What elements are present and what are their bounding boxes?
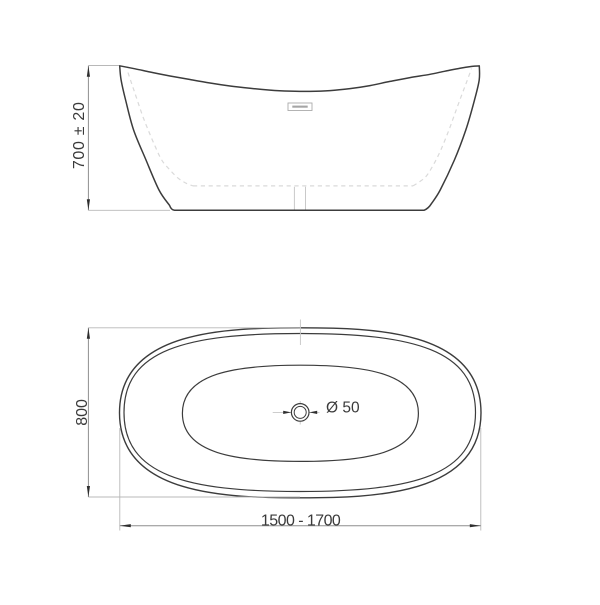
svg-text:800: 800 xyxy=(74,399,91,426)
svg-text:1500 - 1700: 1500 - 1700 xyxy=(261,512,341,529)
svg-text:Ø 50: Ø 50 xyxy=(326,400,360,417)
svg-text:700 ± 20: 700 ± 20 xyxy=(71,101,88,169)
